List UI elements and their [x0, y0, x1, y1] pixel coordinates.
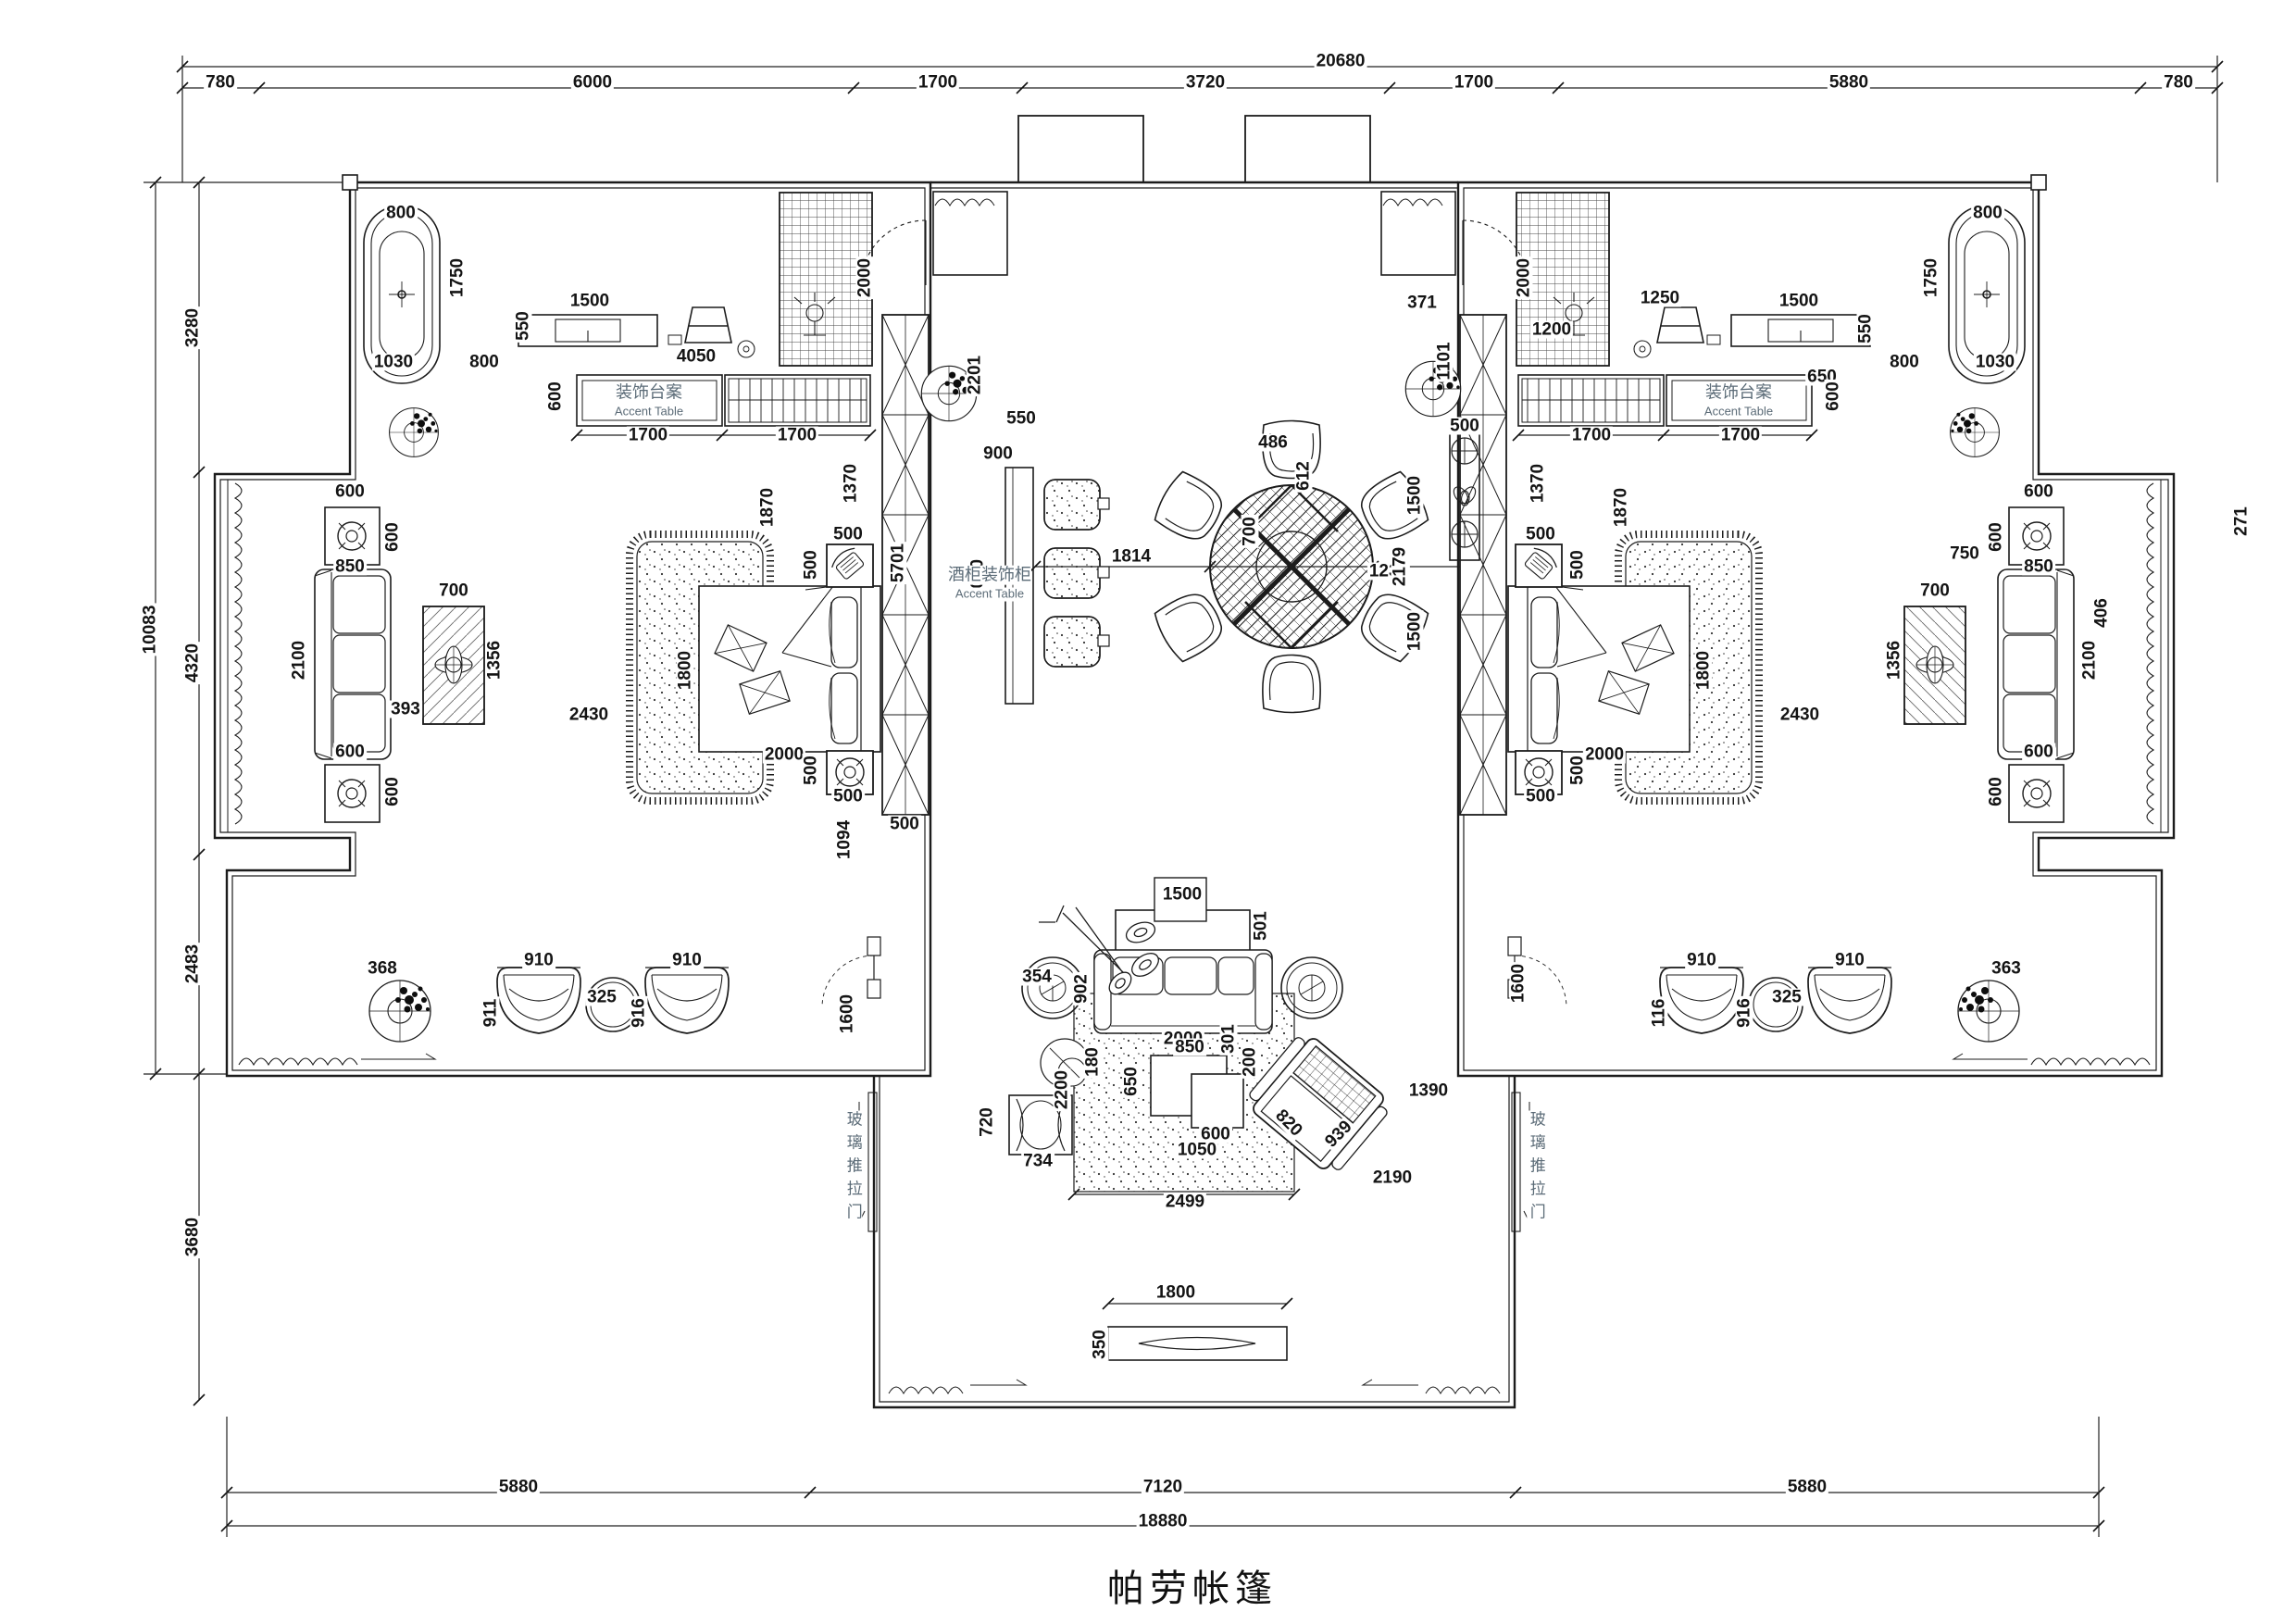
- glass-door-right: 玻璃推拉门: [1527, 1111, 1545, 1227]
- dim-label: 406: [2093, 596, 2111, 630]
- dim-label: 1050: [1176, 1142, 1218, 1159]
- dim-label: 1094: [836, 818, 854, 861]
- glass-door-left: 玻璃推拉门: [843, 1111, 862, 1227]
- dim-label: 2000: [856, 256, 874, 299]
- dim-label: 1030: [372, 354, 415, 371]
- dim-label: 600: [2022, 743, 2055, 761]
- dim-label: 1700: [1453, 74, 1495, 92]
- dim-label: 1500: [1406, 474, 1424, 517]
- dim-label: 600: [333, 483, 367, 501]
- dim-label: 1500: [568, 293, 611, 310]
- dim-label: 200: [1242, 1045, 1259, 1079]
- top-closet-left: [1018, 116, 1143, 182]
- wardrobe: [725, 375, 870, 426]
- dim-label: 734: [1021, 1153, 1054, 1170]
- dim-label: 18880: [1137, 1513, 1190, 1530]
- sliding-door-right: [1512, 1093, 1520, 1231]
- dim-label: 1750: [449, 256, 467, 299]
- dim-label: 1356: [486, 639, 504, 681]
- round-side-table-right: [1281, 957, 1342, 1018]
- dim-label: 900: [981, 445, 1015, 463]
- coffee-table-small: [1192, 1074, 1243, 1128]
- curtain-symbol: [239, 1058, 357, 1065]
- dim-label: 550: [1857, 312, 1875, 345]
- wine-cabinet-cn: 酒柜装饰柜: [948, 566, 1031, 585]
- dim-label: 780: [204, 74, 237, 92]
- curtain-symbol: [1426, 1387, 1500, 1393]
- accent-table-right-en: Accent Table: [1704, 406, 1773, 419]
- dim-label: 3720: [1184, 74, 1227, 92]
- dim-label: 2100: [2081, 639, 2099, 681]
- dim-label: 271: [2233, 505, 2251, 538]
- entry-panel-right: [1381, 192, 1455, 275]
- dim-label: 500: [1569, 548, 1587, 581]
- top-closet-right: [1245, 116, 1370, 182]
- dim-label: 600: [1825, 380, 1842, 413]
- dim-label: 1600: [1510, 962, 1528, 1005]
- dim-label: 325: [585, 989, 618, 1006]
- dim-label: 180: [1084, 1045, 1102, 1079]
- dim-label: 1700: [776, 427, 818, 444]
- dim-label: 910: [670, 952, 704, 969]
- dim-label: 650: [1123, 1065, 1141, 1098]
- dim-label: 4320: [184, 642, 202, 684]
- dim-label: 500: [1524, 526, 1557, 543]
- dim-label: 2000: [763, 746, 805, 764]
- dim-label: 850: [333, 558, 367, 576]
- dim-label: 1700: [1570, 427, 1613, 444]
- dim-label: 2179: [1391, 545, 1409, 588]
- dim-label: 368: [366, 960, 399, 978]
- curtain-arrow: [361, 1054, 435, 1059]
- dim-label: 800: [1888, 354, 1921, 371]
- dim-label: 780: [2162, 74, 2195, 92]
- dim-label: 1870: [759, 486, 777, 529]
- dim-label: 371: [1405, 294, 1439, 312]
- dim-label: 1390: [1407, 1082, 1450, 1100]
- dim-label: 1200: [1530, 321, 1573, 339]
- dim-label: 1700: [1719, 427, 1762, 444]
- dim-label: 2430: [1778, 706, 1821, 724]
- wing-side-table-bottom: [325, 765, 380, 822]
- deck-bench: [1108, 1327, 1287, 1360]
- dim-label: 800: [1971, 205, 2004, 222]
- dim-label: 1800: [1695, 649, 1713, 692]
- dim-label: 363: [1990, 960, 2023, 978]
- dim-label: 500: [803, 548, 820, 581]
- dim-label: 1700: [917, 74, 959, 92]
- dim-label: 902: [1073, 972, 1091, 1006]
- dim-label: 500: [1524, 788, 1557, 806]
- dim-label: 1750: [1923, 256, 1940, 299]
- dim-label: 600: [333, 743, 367, 761]
- dim-label: 1800: [677, 649, 694, 692]
- curtain-symbol: [889, 1387, 963, 1393]
- dim-label: 1030: [1974, 354, 2016, 371]
- dim-label: 1101: [1436, 340, 1454, 381]
- dim-label: 1800: [1154, 1284, 1197, 1302]
- dim-label: 6000: [571, 74, 614, 92]
- dim-label: 910: [1685, 952, 1718, 969]
- dim-label: 720: [979, 1106, 996, 1139]
- bar-console: [1005, 468, 1033, 704]
- dim-label: 2201: [967, 354, 984, 396]
- dim-label: 1700: [627, 427, 669, 444]
- dim-label: 850: [1173, 1039, 1206, 1056]
- dim-label: 1500: [1406, 610, 1424, 653]
- curtain-symbol: [235, 483, 242, 824]
- curtain-symbol: [935, 199, 994, 206]
- curtain-symbol: [1383, 199, 1442, 206]
- dim-label: 4050: [675, 348, 717, 366]
- dim-label: 2190: [1371, 1169, 1414, 1187]
- floor-plan-drawing: [0, 0, 2296, 1624]
- dim-label: 5880: [1786, 1479, 1828, 1496]
- dim-label: 486: [1256, 434, 1290, 452]
- dim-label: 393: [389, 701, 422, 718]
- dim-label: 2200: [1054, 1068, 1071, 1111]
- dim-label: 2000: [1516, 256, 1533, 299]
- dim-label: 5701: [890, 542, 907, 584]
- wine-cabinet-en: Accent Table: [955, 588, 1024, 602]
- dim-label: 10083: [142, 604, 159, 656]
- dim-label: 1370: [1529, 462, 1547, 505]
- dim-label: 1356: [1886, 639, 1903, 681]
- dim-label: 2483: [184, 943, 202, 985]
- dim-label: 600: [2022, 483, 2055, 501]
- dim-label: 1250: [1639, 290, 1681, 307]
- dim-label: 700: [1918, 582, 1952, 600]
- dim-label: 910: [1833, 952, 1866, 969]
- accent-table-left-cn: 装饰台案: [616, 383, 682, 403]
- dim-label: 1500: [1778, 293, 1820, 310]
- dim-label: 301: [1220, 1022, 1238, 1056]
- floor-plan-sheet: 帕劳帐篷 20680780600017003720170058807803280…: [0, 0, 2296, 1624]
- dim-label: 500: [803, 754, 820, 787]
- dim-label: 910: [522, 952, 555, 969]
- dim-label: 3680: [184, 1216, 202, 1258]
- dim-label: 501: [1253, 909, 1270, 943]
- dim-label: 1870: [1613, 486, 1630, 529]
- dim-label: 500: [831, 788, 865, 806]
- accent-table-left-en: Accent Table: [615, 406, 683, 419]
- dim-label: 1500: [1161, 886, 1204, 904]
- dim-label: 916: [630, 996, 648, 1030]
- dim-label: 800: [384, 205, 418, 222]
- dim-label: 2430: [568, 706, 610, 724]
- dim-label: 5880: [497, 1479, 540, 1496]
- entry-panel-left: [933, 192, 1007, 275]
- dim-label: 2100: [291, 639, 308, 681]
- dim-label: 500: [1569, 754, 1587, 787]
- sliding-door-left: [868, 1093, 877, 1231]
- dim-label: 350: [1092, 1328, 1109, 1361]
- dim-label: 700: [437, 582, 470, 600]
- dim-label: 600: [384, 775, 402, 808]
- bed: [699, 586, 880, 752]
- dim-label: 600: [1988, 775, 2005, 808]
- dim-label: 354: [1020, 968, 1054, 986]
- dim-label: 612: [1295, 459, 1313, 493]
- dim-label: 550: [1004, 410, 1038, 428]
- dim-label: 700: [1242, 515, 1259, 548]
- wall-post: [343, 175, 357, 190]
- wing-coffee-table: [423, 606, 484, 724]
- dim-label: 916: [1736, 996, 1753, 1030]
- dining-table: [1210, 485, 1373, 648]
- drawing-title: 帕劳帐篷: [1107, 1558, 1278, 1612]
- dim-label: 1600: [839, 993, 856, 1035]
- dim-label: 500: [888, 816, 921, 833]
- dim-label: 550: [515, 309, 532, 343]
- dim-label: 600: [384, 520, 402, 554]
- dim-label: 800: [468, 354, 501, 371]
- vanity-stool: [685, 307, 731, 343]
- dim-label: 600: [1988, 520, 2005, 554]
- dim-label: 850: [2022, 558, 2055, 576]
- dim-label: 750: [1948, 545, 1981, 563]
- dim-label: 116: [1651, 997, 1668, 1030]
- dim-label: 1370: [842, 462, 860, 505]
- dim-label: 1814: [1110, 548, 1153, 566]
- dim-label: 500: [831, 526, 865, 543]
- dim-label: 2000: [1583, 746, 1626, 764]
- dim-label: 911: [482, 997, 500, 1030]
- vanity-counter: [518, 315, 755, 357]
- dim-label: 325: [1770, 989, 1803, 1006]
- dim-label: 7120: [1142, 1479, 1184, 1496]
- dim-label: 2499: [1164, 1193, 1206, 1211]
- dim-label: 20680: [1315, 53, 1367, 70]
- dim-label: 600: [547, 380, 565, 413]
- dim-label: 3280: [184, 306, 202, 349]
- dim-label: 5880: [1828, 74, 1870, 92]
- accent-table-right-cn: 装饰台案: [1705, 383, 1772, 403]
- nightstand-top: [827, 544, 873, 587]
- wing-sofa: [315, 569, 391, 759]
- dim-label: 500: [1448, 418, 1481, 435]
